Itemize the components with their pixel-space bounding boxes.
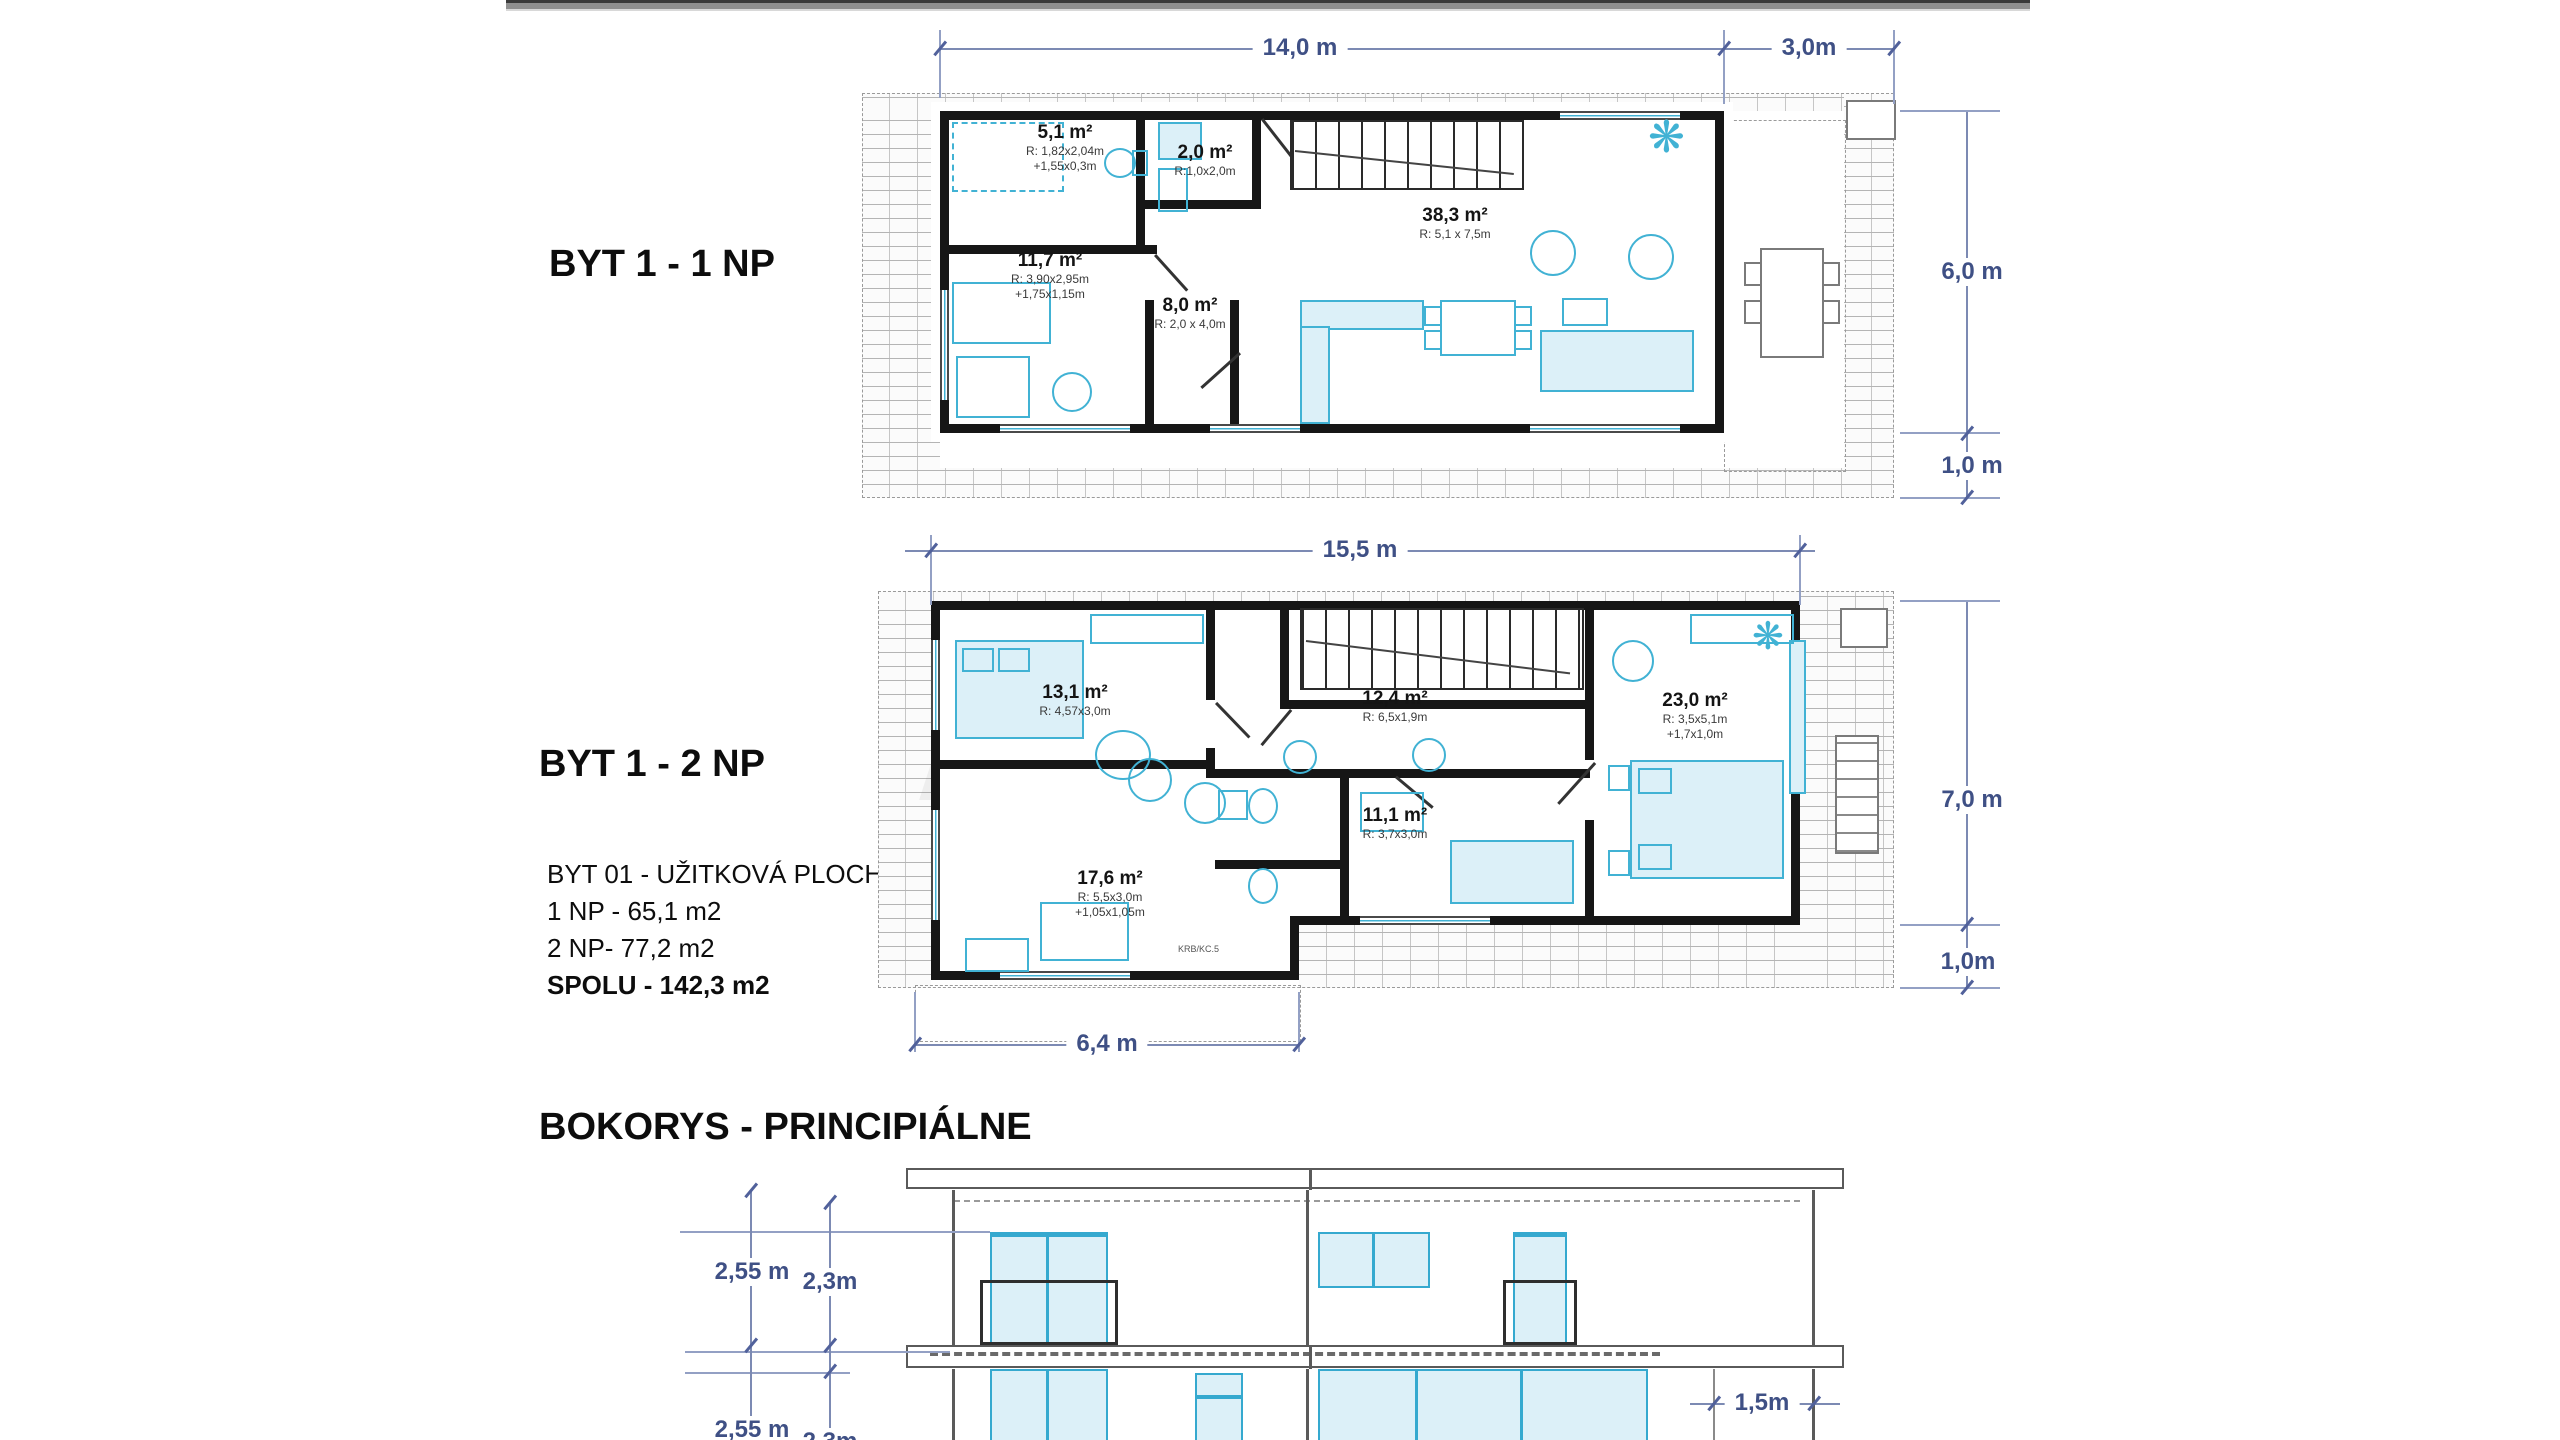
- stairs-2np: [1300, 608, 1584, 690]
- room-label: 8,0 m² R: 2,0 x 4,0m: [1120, 295, 1260, 332]
- dimension-label: 2,3m: [793, 1428, 868, 1440]
- plant-icon: ❋: [1752, 618, 1784, 656]
- wardrobe: [1090, 614, 1204, 644]
- room-label: 13,1 m² R: 4,57x3,0m: [1000, 682, 1150, 719]
- dimension-label: 3,0m: [1772, 34, 1847, 62]
- plant-icon: ❋: [1648, 116, 1685, 160]
- terrace-table: [1760, 248, 1824, 358]
- railing: [1503, 1280, 1577, 1345]
- roof-slab: [906, 1168, 1844, 1189]
- railing: [980, 1280, 1118, 1345]
- lounge-chair: [1530, 230, 1576, 276]
- area-summary: BYT 01 - UŽITKOVÁ PLOCHA 1 NP - 65,1 m2 …: [547, 856, 901, 1004]
- sink: [1283, 740, 1317, 774]
- armchair: [1052, 372, 1092, 412]
- room-label: 38,3 m² R: 5,1 x 7,5m: [1380, 205, 1530, 242]
- dimension-label: 1,5m: [1725, 1389, 1800, 1417]
- ladder: [1835, 735, 1879, 854]
- toilet: [1248, 868, 1278, 904]
- balcony-window: [1789, 640, 1806, 794]
- hatch-block: [1840, 608, 1888, 648]
- dimension-label: 6,0 m: [1931, 258, 2012, 286]
- sink: [1412, 738, 1446, 772]
- bed: [1450, 840, 1574, 904]
- room-label: 2,0 m² R:1,0x2,0m: [1150, 142, 1260, 179]
- dimension-label: 1,0m: [1931, 948, 2006, 976]
- room-label: 11,7 m² R: 3,90x2,95m +1,75x1,15m: [975, 250, 1125, 302]
- room-label: 17,6 m² R: 5,5x3,0m +1,05x1,05m: [1030, 868, 1190, 920]
- sink: [1218, 790, 1248, 820]
- elevation-title: BOKORYS - PRINCIPIÁLNE: [539, 1106, 1032, 1149]
- floor-slab: [906, 1345, 1844, 1368]
- dimension-label: 6,4 m: [1066, 1030, 1147, 1058]
- room-label: 11,1 m² R: 3,7x3,0m: [1330, 805, 1460, 842]
- plan1-title: BYT 1 - 1 NP: [549, 243, 775, 286]
- sofa: [1540, 330, 1694, 392]
- armchair: [1095, 730, 1151, 780]
- window: [990, 1369, 1108, 1440]
- dimension-label: 15,5 m: [1313, 536, 1408, 564]
- dimension-label: 7,0 m: [1931, 786, 2012, 814]
- dining-table: [1440, 300, 1516, 356]
- window: [1195, 1373, 1243, 1440]
- dimension-label: 14,0 m: [1253, 34, 1348, 62]
- room-label: 5,1 m² R: 1,82x2,04m +1,55x0,3m: [1000, 122, 1130, 174]
- dimension-label: 2,55 m: [705, 1416, 800, 1440]
- plan2-title: BYT 1 - 2 NP: [539, 743, 765, 786]
- lounge-chair: [1628, 234, 1674, 280]
- floorplan-sheet: BYT 1 - 1 NP ❋: [0, 0, 2560, 1440]
- top-edge-bar: [506, 0, 2030, 11]
- hatch-block: [1846, 100, 1896, 140]
- room-label: 23,0 m² R: 3,5x5,1m +1,7x1,0m: [1620, 690, 1770, 742]
- armchair: [1612, 640, 1654, 682]
- window: [1318, 1369, 1648, 1440]
- dimension-label: 2,55 m: [705, 1258, 800, 1286]
- toilet: [1248, 788, 1278, 824]
- dimension-label: 2,3m: [793, 1268, 868, 1296]
- dimension-label: 1,0 m: [1931, 452, 2012, 480]
- room-label: 12,4 m² R: 6,5x1,9m: [1320, 688, 1470, 725]
- fireplace-label: KRB/KC.5: [1178, 944, 1219, 954]
